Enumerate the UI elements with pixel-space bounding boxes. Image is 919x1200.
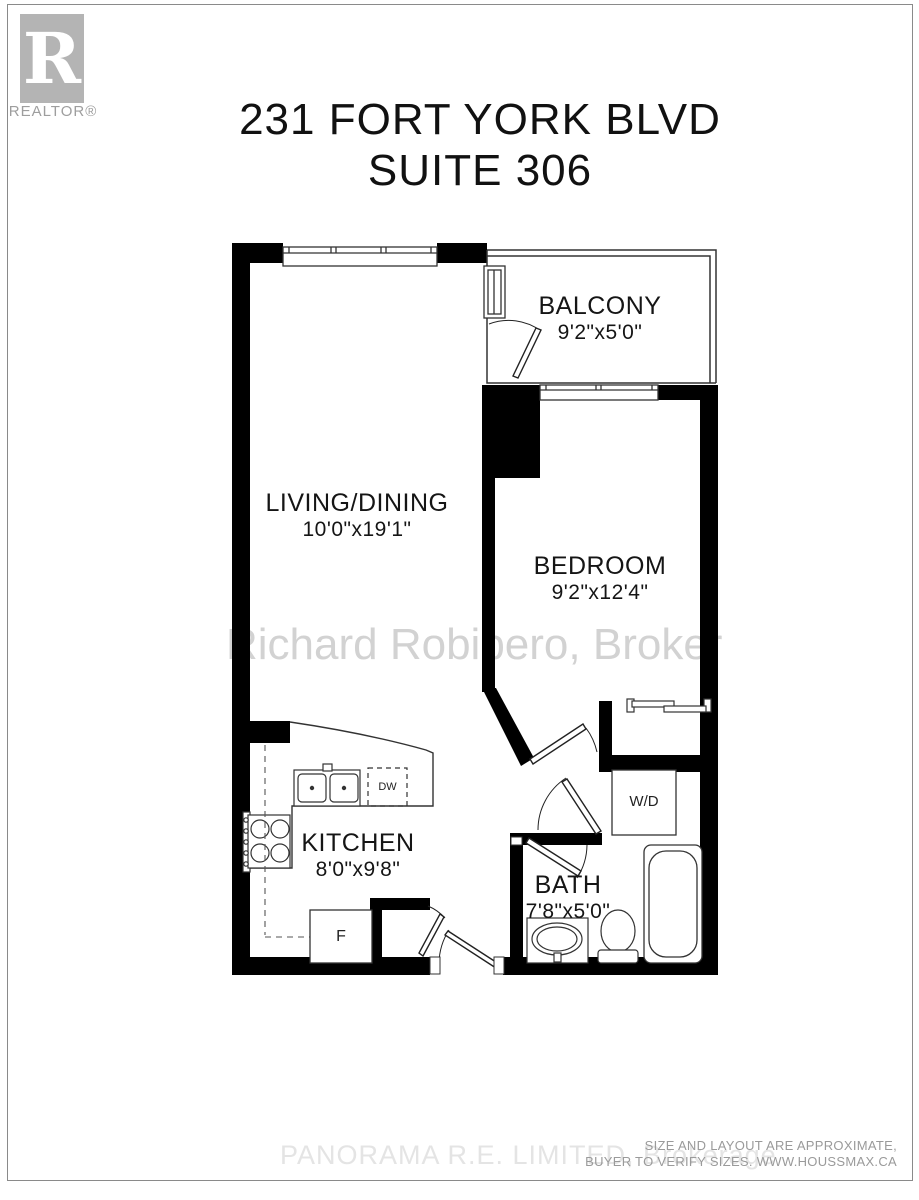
floorplan-drawing — [0, 0, 919, 1200]
entry-door — [439, 930, 502, 970]
bedroom-label: BEDROOM 9'2"x12'4" — [500, 552, 700, 606]
closet-stub-wall — [599, 701, 612, 761]
bedroom-door — [530, 724, 597, 764]
floorplan-page: R REALTOR® 231 FORT YORK BLVD SUITE 306 … — [0, 0, 919, 1200]
disclaimer-line1: SIZE AND LAYOUT ARE APPROXIMATE, — [585, 1138, 897, 1154]
balcony-door-sidelight — [484, 266, 505, 318]
right-wall — [700, 385, 718, 975]
bedroom-topwall-right — [658, 385, 718, 400]
top-wall-right — [437, 243, 487, 263]
balcony-name: BALCONY — [520, 292, 680, 320]
top-wall-left — [232, 243, 283, 263]
bath-dims: 7'8"x5'0" — [512, 899, 624, 925]
living-window — [283, 247, 437, 266]
bath-top-wall — [510, 833, 602, 845]
stove — [243, 812, 290, 872]
kitchen-stub-wall — [243, 721, 290, 743]
fridge-label: F — [310, 928, 372, 946]
bathtub — [644, 845, 702, 963]
bedroom-angled-wall — [482, 688, 534, 766]
disclaimer-line2: BUYER TO VERIFY SIZES. WWW.HOUSSMAX.CA — [585, 1154, 897, 1170]
kitchen-name: KITCHEN — [288, 829, 428, 857]
kitchen-sink — [294, 764, 360, 806]
living-bedroom-divider — [482, 476, 495, 692]
living-dining-name: LIVING/DINING — [252, 489, 462, 517]
bedroom-dims: 9'2"x12'4" — [500, 580, 700, 606]
washer-dryer-label: W/D — [612, 793, 676, 810]
bedroom-name: BEDROOM — [500, 552, 700, 580]
kitchen-label: KITCHEN 8'0"x9'8" — [288, 829, 428, 883]
balcony-dims: 9'2"x5'0" — [520, 320, 680, 346]
dishwasher-label: DW — [368, 781, 407, 793]
kitchen-dims: 8'0"x9'8" — [288, 857, 428, 883]
bath-name: BATH — [512, 871, 624, 899]
balcony-label: BALCONY 9'2"x5'0" — [520, 292, 680, 346]
living-dining-dims: 10'0"x19'1" — [252, 517, 462, 543]
size-disclaimer: SIZE AND LAYOUT ARE APPROXIMATE, BUYER T… — [585, 1138, 897, 1170]
bath-label: BATH 7'8"x5'0" — [512, 871, 624, 925]
laundry-door — [538, 778, 601, 834]
bedroom-closet-sliding-doors — [627, 699, 711, 712]
living-dining-label: LIVING/DINING 10'0"x19'1" — [252, 489, 462, 543]
bedroom-corner-wall — [482, 385, 540, 478]
bedroom-window — [540, 385, 658, 400]
